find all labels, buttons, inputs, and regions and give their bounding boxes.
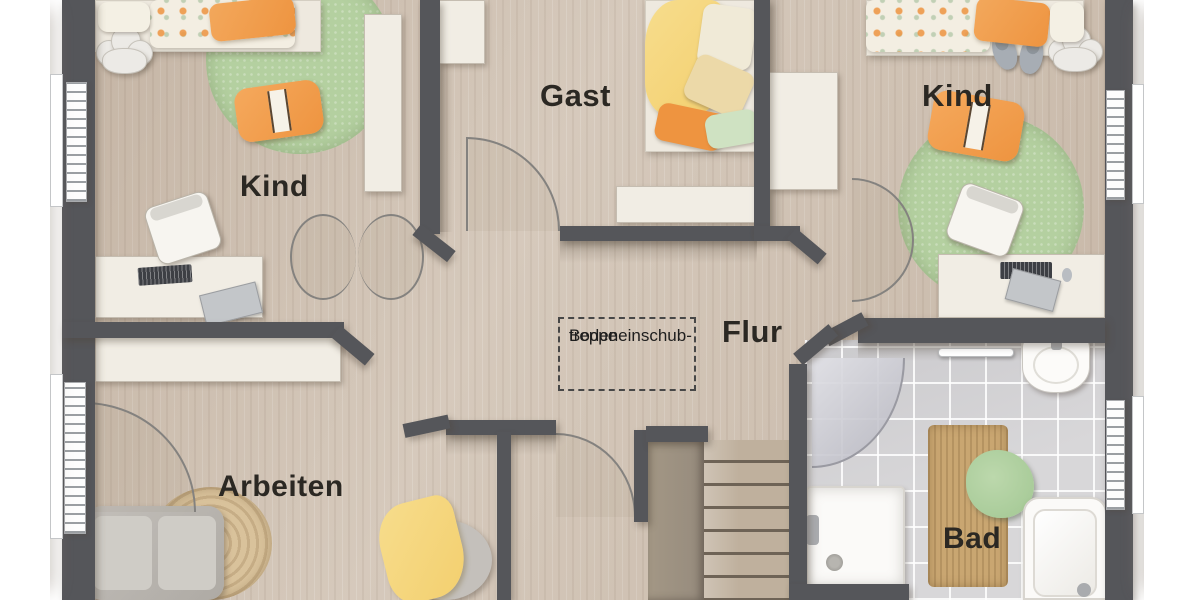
radiator-icon xyxy=(64,382,86,534)
tub-faucet xyxy=(1077,583,1091,597)
towel-rail xyxy=(938,348,1014,357)
wall-gast-bottom xyxy=(560,226,757,241)
wall-bath-bottom xyxy=(789,584,909,600)
wall-bath-top xyxy=(858,318,1105,343)
bed-pillow xyxy=(98,2,150,32)
page-margin-left xyxy=(0,0,50,600)
room-label-flur: Flur xyxy=(722,314,783,350)
room-label-bad: Bad xyxy=(943,522,1001,556)
stair-upper-flight xyxy=(648,440,704,600)
wall-stairwell-left xyxy=(634,430,648,522)
door-swing-kind-left xyxy=(290,214,356,300)
wall-arbeiten-top xyxy=(62,322,344,338)
wardrobe xyxy=(364,14,402,192)
cloud-mirror-icon xyxy=(96,26,154,78)
window-icon xyxy=(50,74,63,207)
radiator-icon xyxy=(1106,90,1125,200)
window-icon xyxy=(1132,84,1144,204)
wall-gast-right xyxy=(754,0,770,232)
mouse xyxy=(1062,268,1072,282)
window-icon xyxy=(1132,396,1144,514)
staircase xyxy=(704,440,792,600)
bed-duvet xyxy=(866,0,990,52)
keyboard xyxy=(137,264,192,286)
page-margin-right xyxy=(1144,0,1200,600)
bed-pillow xyxy=(1050,2,1084,42)
wall-gast-left xyxy=(420,0,440,234)
bed-blanket xyxy=(973,0,1051,48)
room-label-kind-left: Kind xyxy=(240,170,309,204)
room-label-gast: Gast xyxy=(540,78,611,114)
attic-ladder-note-line2: treppe xyxy=(569,325,617,347)
sink xyxy=(1022,337,1090,393)
radiator-icon xyxy=(1106,400,1125,510)
wall-bath-left xyxy=(789,364,807,600)
bathtub xyxy=(1023,497,1107,600)
attic-ladder-note: Bodeneinschub- treppe xyxy=(558,317,696,391)
wardrobe xyxy=(439,0,485,64)
floor-plan: Kind Gast Kind Arbeiten Flur Bode xyxy=(0,0,1200,600)
room-label-arbeiten: Arbeiten xyxy=(218,470,344,504)
shower-tray xyxy=(806,486,905,588)
wall-stair-top xyxy=(646,426,708,442)
shower-mixer xyxy=(806,515,819,545)
window-icon xyxy=(50,374,63,539)
sideboard xyxy=(616,186,758,223)
wall-midroom-left xyxy=(497,432,511,600)
sideboard xyxy=(95,336,341,382)
sofa xyxy=(86,506,224,600)
door-swing-arbeiten-entry xyxy=(358,214,424,300)
room-label-kind-right: Kind xyxy=(922,78,993,114)
radiator-icon xyxy=(66,82,87,202)
wall-shadow xyxy=(560,241,757,263)
wardrobe xyxy=(769,72,838,190)
